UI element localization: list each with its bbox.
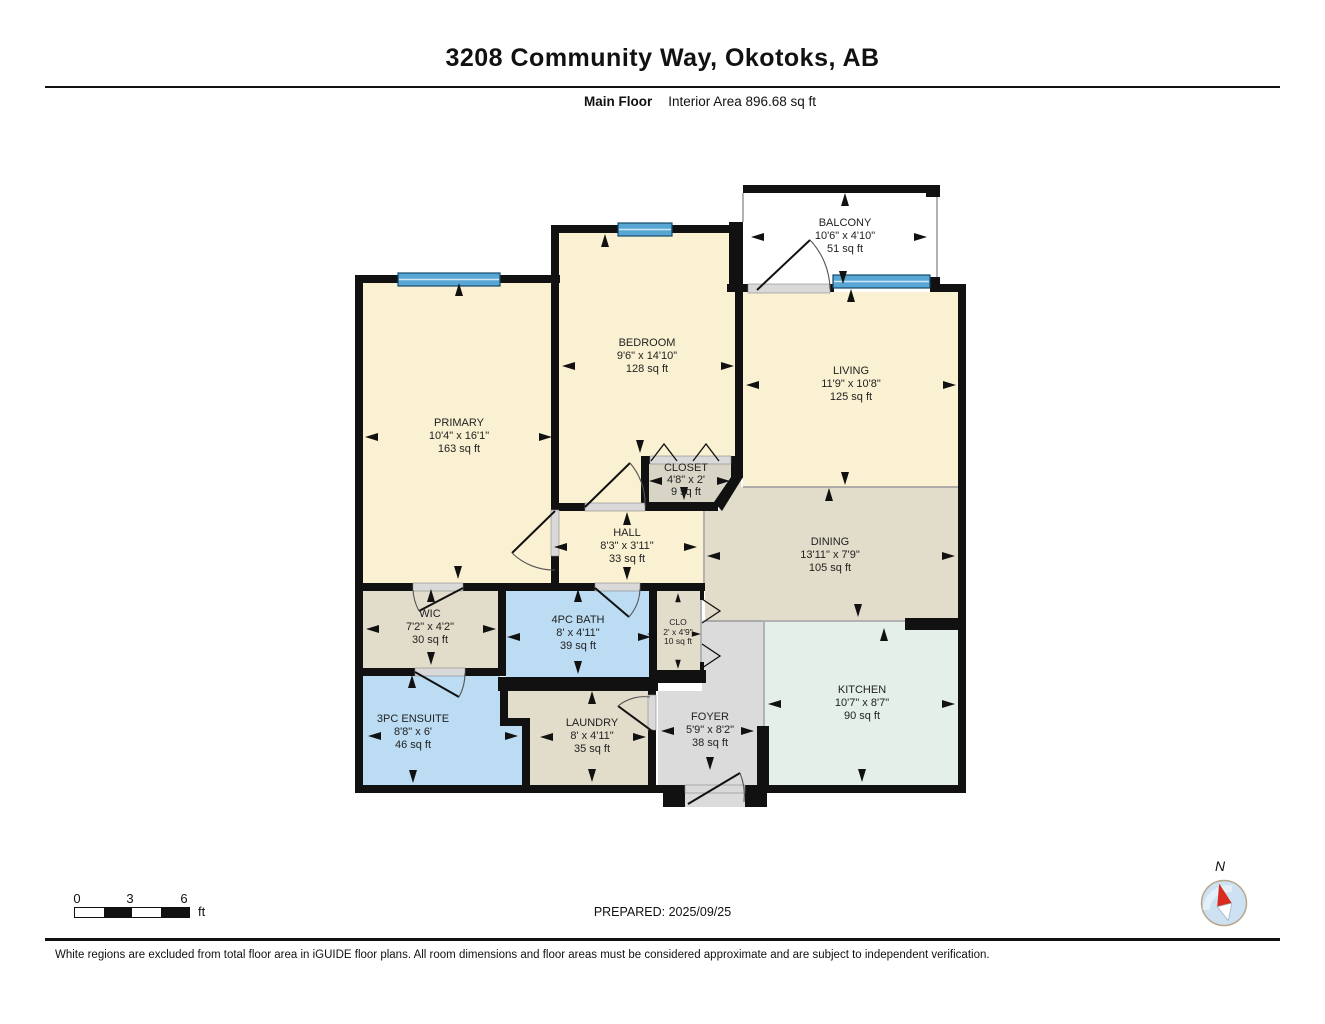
- floorplan-drawing: [0, 0, 1325, 1024]
- window-living: [833, 275, 930, 288]
- disclaimer-text: White regions are excluded from total fl…: [55, 949, 990, 961]
- room-label-living: LIVING11'9" x 10'8"125 sq ft: [821, 365, 881, 404]
- room-label-hall: HALL8'3" x 3'11"33 sq ft: [600, 527, 653, 566]
- prepared-date: PREPARED: 2025/09/25: [0, 905, 1325, 919]
- footer-divider: [45, 938, 1280, 941]
- room-label-primary: PRIMARY10'4" x 16'1"163 sq ft: [429, 417, 489, 456]
- room-label-wic: WIC7'2" x 4'2"30 sq ft: [406, 608, 454, 647]
- room-label-bedroom: BEDROOM9'6" x 14'10"128 sq ft: [617, 337, 677, 376]
- window-bedroom: [618, 223, 672, 236]
- scale-tick-3: 3: [126, 891, 133, 906]
- room-label-bath: 4PC BATH8' x 4'11"39 sq ft: [552, 614, 605, 653]
- room-label-closet: CLOSET4'8" x 2'9 sq ft: [664, 462, 708, 498]
- room-label-dining: DINING13'11" x 7'9"105 sq ft: [800, 536, 860, 575]
- room-label-balcony: BALCONY10'6" x 4'10"51 sq ft: [815, 217, 875, 256]
- compass-north-label: N: [1188, 858, 1252, 874]
- floorplan-page: 3208 Community Way, Okotoks, AB Main Flo…: [0, 0, 1325, 1024]
- window-primary: [398, 273, 500, 286]
- room-label-clo: CLO2' x 4'9"10 sq ft: [663, 618, 692, 647]
- room-label-ensuite: 3PC ENSUITE8'8" x 6'46 sq ft: [377, 713, 449, 752]
- compass: N: [1196, 858, 1252, 930]
- scale-tick-0: 0: [73, 891, 80, 906]
- compass-rose-icon: [1196, 874, 1252, 930]
- room-label-kitchen: KITCHEN10'7" x 8'7"90 sq ft: [835, 684, 889, 723]
- scale-tick-6: 6: [180, 891, 187, 906]
- room-label-laundry: LAUNDRY8' x 4'11"35 sq ft: [566, 717, 618, 756]
- room-label-foyer: FOYER5'9" x 8'2"38 sq ft: [686, 711, 734, 750]
